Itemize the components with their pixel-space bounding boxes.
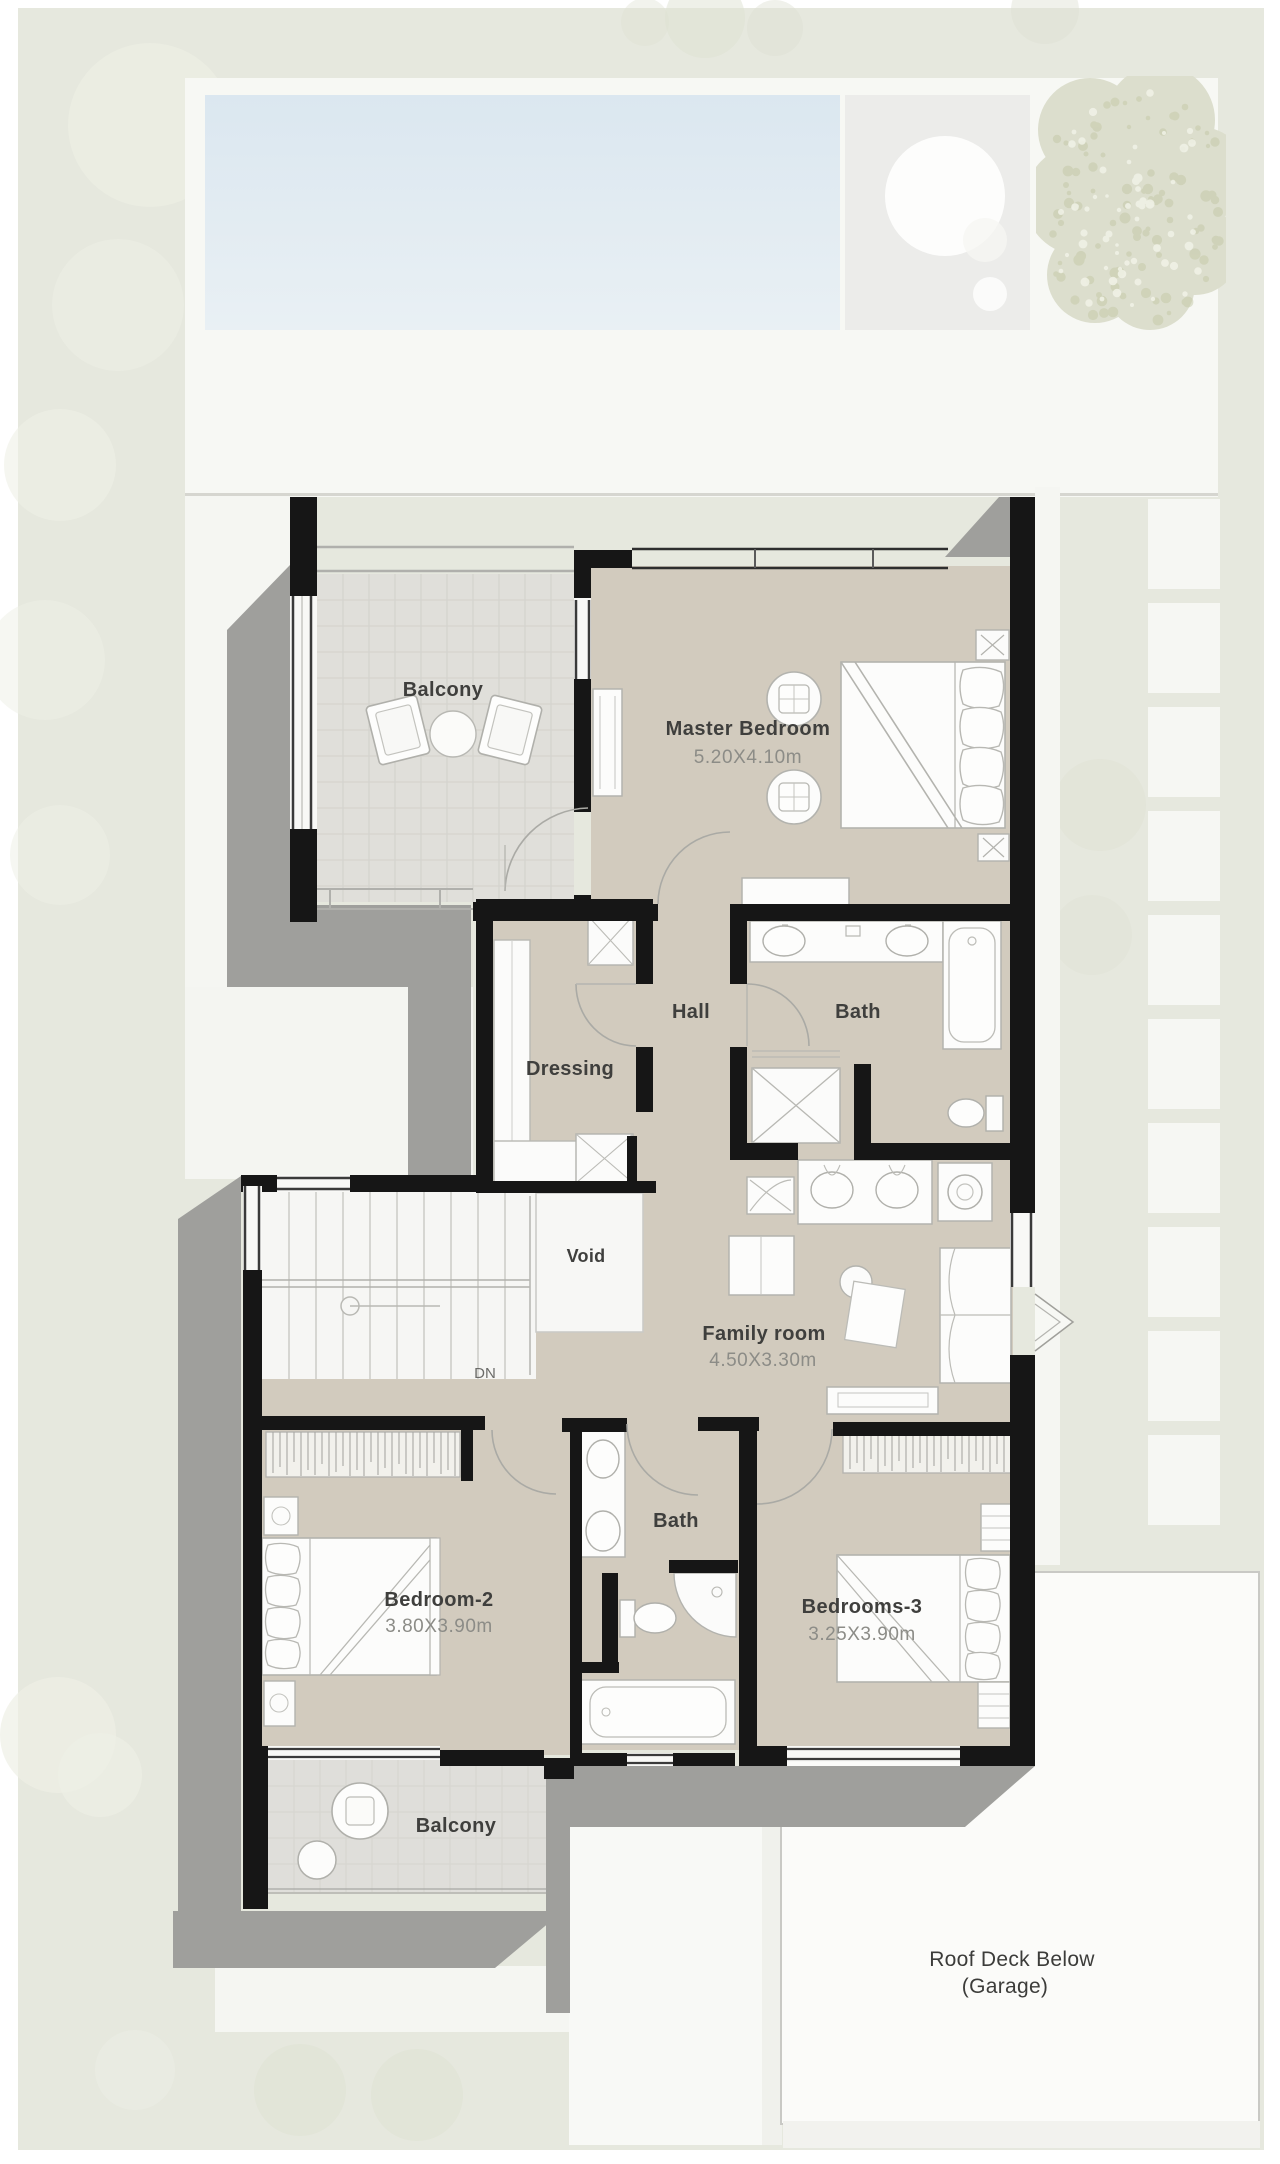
svg-text:Master Bedroom: Master Bedroom	[666, 718, 831, 740]
svg-text:Void: Void	[567, 1246, 606, 1266]
svg-text:Bath: Bath	[653, 1510, 699, 1532]
svg-text:Balcony: Balcony	[403, 679, 484, 701]
svg-text:Family room: Family room	[702, 1323, 825, 1345]
svg-text:Balcony: Balcony	[416, 1815, 497, 1837]
svg-text:Bath: Bath	[835, 1001, 881, 1023]
svg-text:Bedroom-2: Bedroom-2	[384, 1589, 493, 1611]
svg-text:4.50X3.30m: 4.50X3.30m	[709, 1350, 816, 1371]
svg-text:5.20X4.10m: 5.20X4.10m	[694, 747, 802, 768]
svg-text:(Garage): (Garage)	[962, 1975, 1048, 1998]
svg-text:Roof Deck Below: Roof Deck Below	[929, 1948, 1095, 1971]
svg-text:3.80X3.90m: 3.80X3.90m	[385, 1616, 492, 1637]
svg-text:3.25X3.90m: 3.25X3.90m	[808, 1624, 915, 1645]
svg-text:Dressing: Dressing	[526, 1058, 614, 1080]
svg-text:Bedrooms-3: Bedrooms-3	[802, 1596, 923, 1618]
svg-text:DN: DN	[474, 1365, 496, 1382]
svg-text:Hall: Hall	[672, 1001, 710, 1023]
